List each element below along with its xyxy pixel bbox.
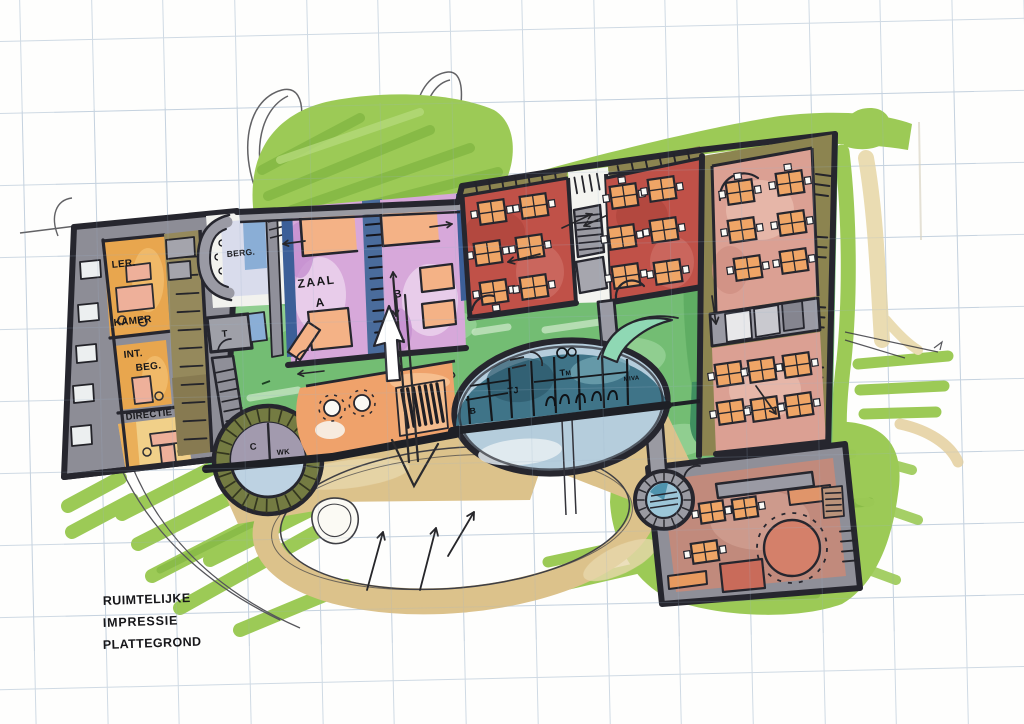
- svg-text:T: T: [221, 328, 228, 339]
- svg-text:B: B: [469, 405, 476, 416]
- svg-text:A: A: [315, 295, 326, 310]
- svg-text:WK: WK: [276, 447, 290, 457]
- svg-text:C: C: [249, 441, 257, 453]
- svg-text:IMPRESSIE: IMPRESSIE: [103, 613, 179, 630]
- svg-text:INT.: INT.: [123, 348, 143, 361]
